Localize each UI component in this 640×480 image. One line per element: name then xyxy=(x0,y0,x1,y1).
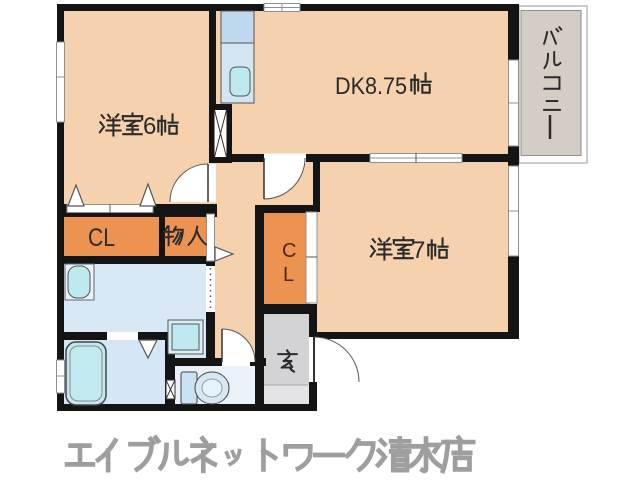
svg-text:L: L xyxy=(283,264,294,286)
svg-text:6: 6 xyxy=(143,113,156,140)
svg-text:DK8.75: DK8.75 xyxy=(335,73,407,100)
svg-text:CL: CL xyxy=(88,224,115,252)
svg-text:C: C xyxy=(282,240,296,262)
svg-text:7: 7 xyxy=(412,237,425,264)
